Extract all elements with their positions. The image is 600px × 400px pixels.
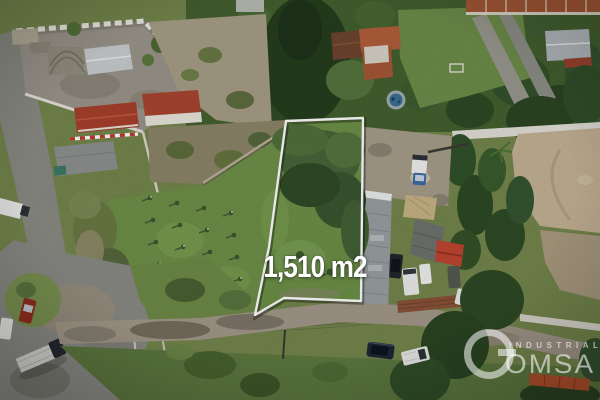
plot-area-label: 1,510 m2: [252, 249, 378, 285]
watermark-brand: OMSA: [505, 349, 595, 380]
aerial-photo: 1,510 m2 INDUSTRIAL OMSA: [0, 0, 600, 400]
